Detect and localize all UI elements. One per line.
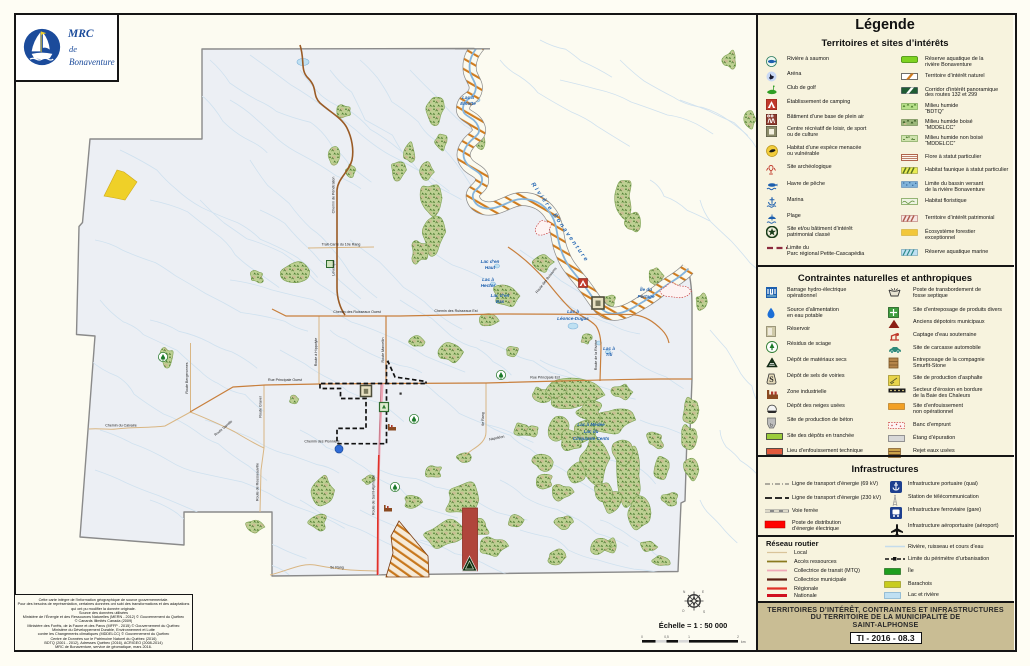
svg-text:S: S <box>769 375 774 384</box>
